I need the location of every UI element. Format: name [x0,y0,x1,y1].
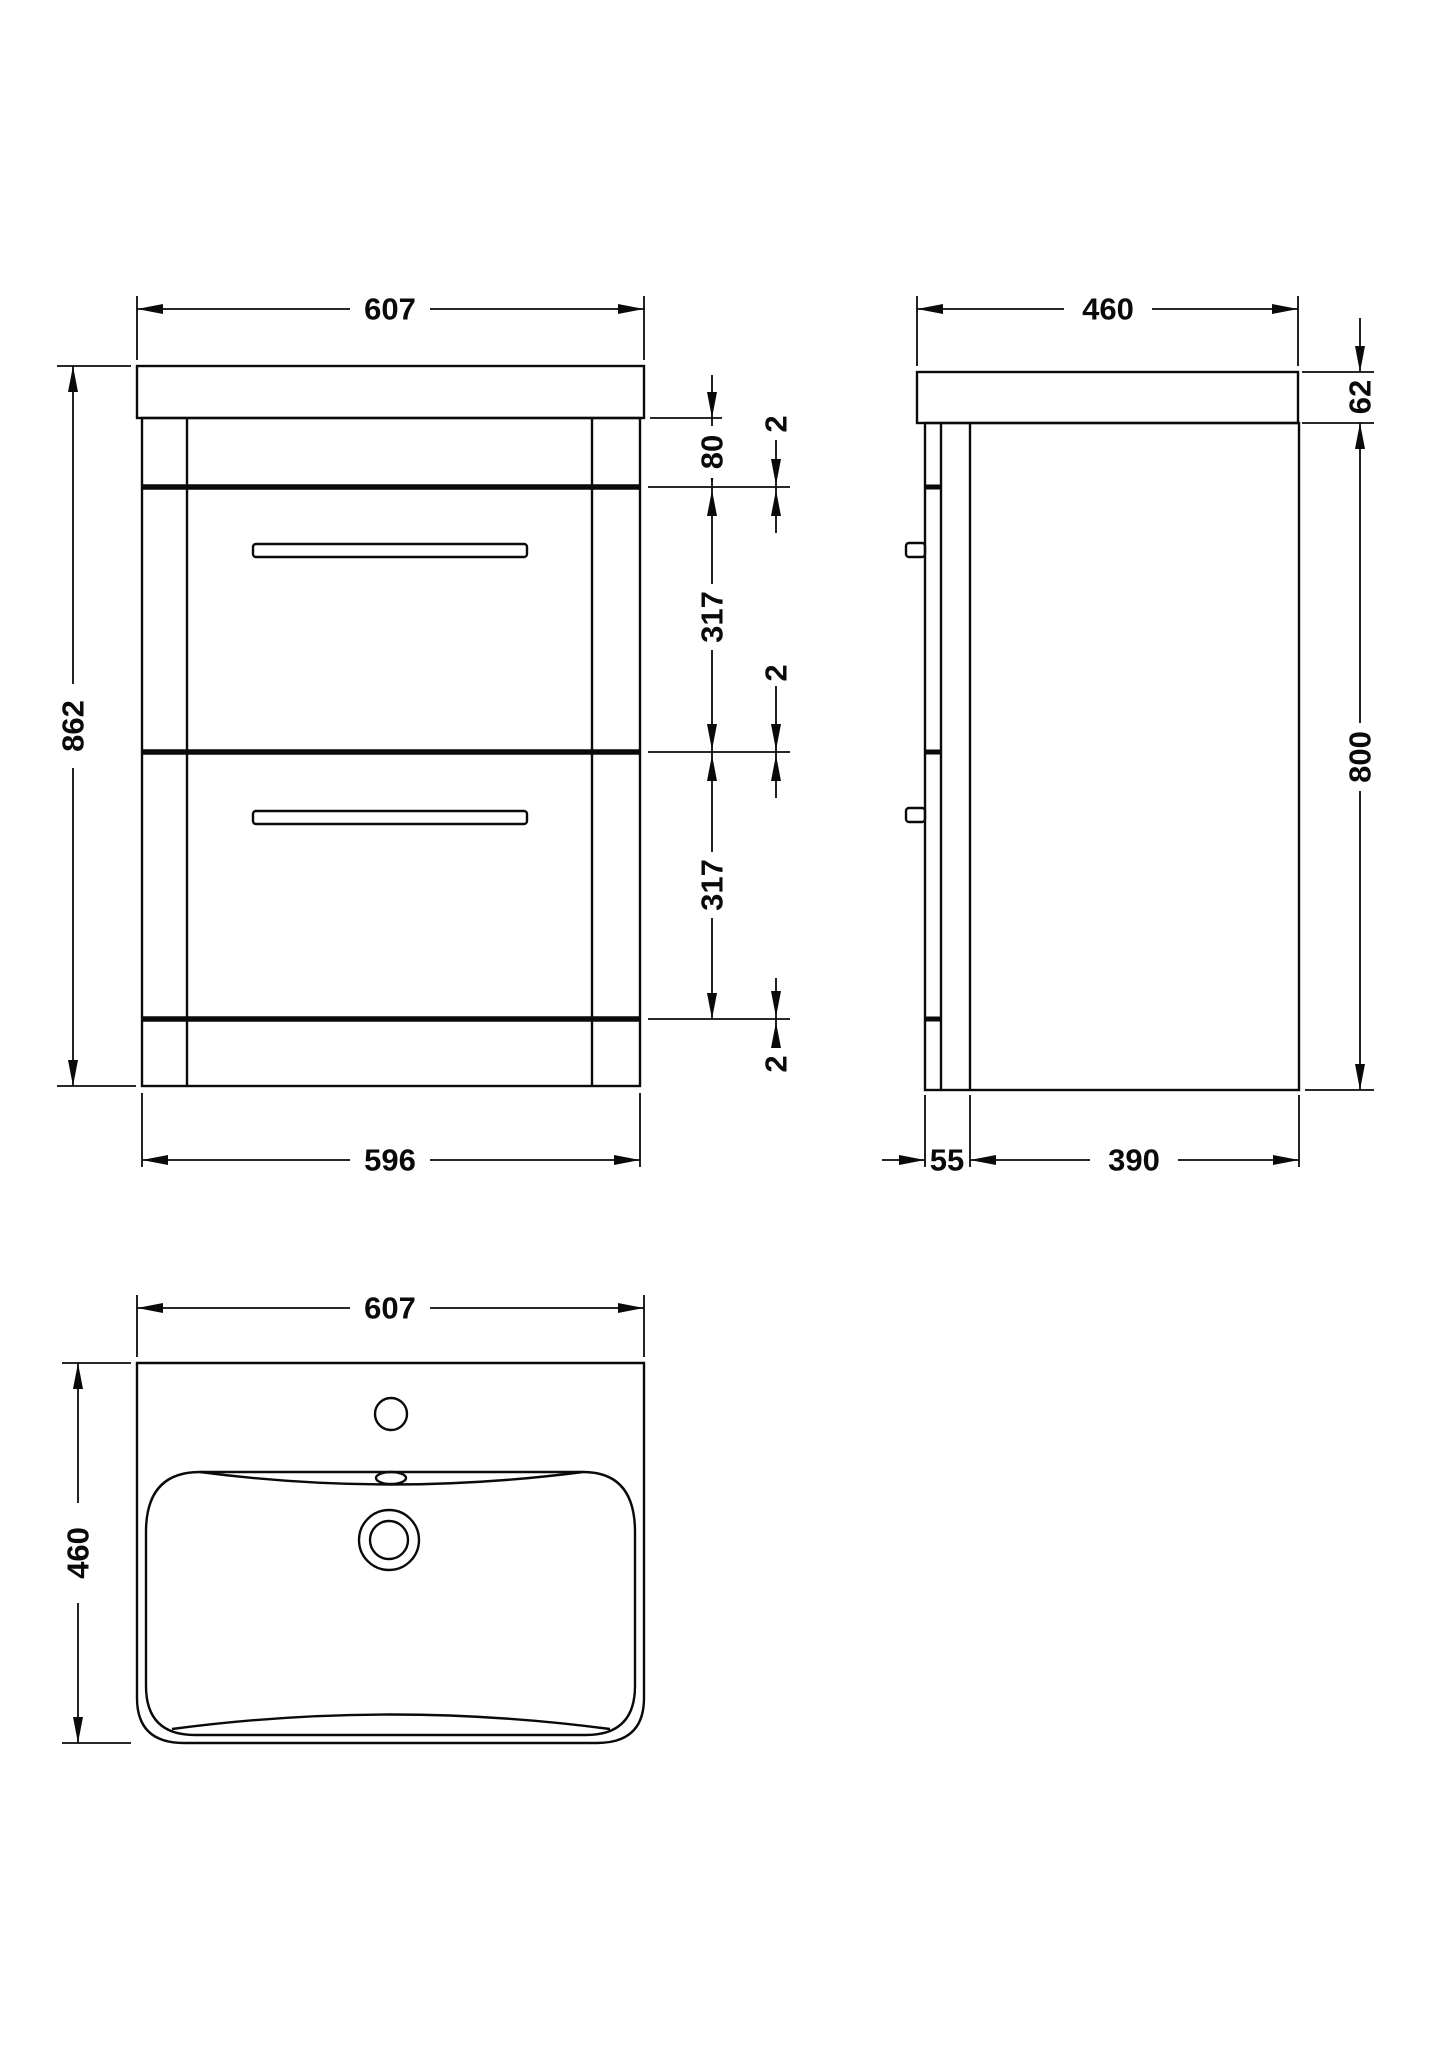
plan-basin-rim-inner-edge [200,1472,583,1485]
plan-dimension-labels: 607 460 [61,1291,416,1579]
overflow-hole [376,1472,406,1484]
side-dim-body-depth: 390 [1108,1143,1160,1178]
side-outline [906,372,1299,1090]
front-dim-drawer2: 317 [695,859,730,911]
side-dim-depth: 460 [1082,292,1134,327]
plan-basin-rim [146,1472,635,1735]
front-dimension-labels: 607 862 80 2 317 2 317 2 596 [56,292,794,1178]
side-handle-tab-top [906,543,925,557]
front-text-masks [56,292,729,1177]
plan-dim-width: 607 [364,1291,416,1326]
front-drawer-gaps [142,487,640,1019]
front-dim-width-bottom: 596 [364,1143,416,1178]
front-worktop [137,366,644,418]
front-view: 607 862 80 2 317 2 317 2 596 [56,292,794,1178]
plan-outline [137,1363,644,1743]
side-text-masks [1064,292,1377,1177]
plan-bowl-bottom-contour [172,1715,610,1730]
vanity-unit-drawing: 607 862 80 2 317 2 317 2 596 [0,0,1445,2045]
side-dim-worktop-thickness: 62 [1343,380,1378,414]
side-view: 460 62 800 55 390 [882,292,1378,1178]
plan-dim-depth: 460 [61,1527,96,1579]
front-dim-drawer1: 317 [695,591,730,643]
front-dim-width-top: 607 [364,292,416,327]
drawer-handle-top [253,544,527,557]
side-worktop [917,372,1298,423]
drawer-handle-bottom [253,811,527,824]
plan-text-masks [61,1291,430,1603]
waste-hole-inner [370,1521,408,1559]
front-arrowheads [68,304,781,1165]
front-dim-gap-top: 2 [759,415,794,432]
side-dimension-labels: 460 62 800 55 390 [930,292,1378,1178]
plan-arrowheads [73,1303,644,1743]
waste-hole-outer [359,1510,419,1570]
side-drawer-gap-ticks [925,487,941,1019]
side-handle-tab-bottom [906,808,925,822]
side-dim-front-section: 55 [930,1143,964,1178]
front-dim-gap-mid: 2 [759,664,794,681]
tap-hole [375,1398,407,1430]
front-drawer-handles [253,544,527,824]
side-dim-body-height: 800 [1343,731,1378,783]
plan-worktop-outline [137,1363,644,1743]
side-cabinet [925,423,1299,1090]
technical-drawing-page: 607 862 80 2 317 2 317 2 596 [0,0,1445,2045]
front-dim-gap-bottom: 2 [759,1055,794,1072]
front-dim-height: 862 [56,700,91,752]
front-dim-top-rail: 80 [695,435,730,469]
front-outline [137,366,644,1086]
front-dimension-lines [57,296,790,1167]
plan-view: 607 460 [61,1291,645,1744]
